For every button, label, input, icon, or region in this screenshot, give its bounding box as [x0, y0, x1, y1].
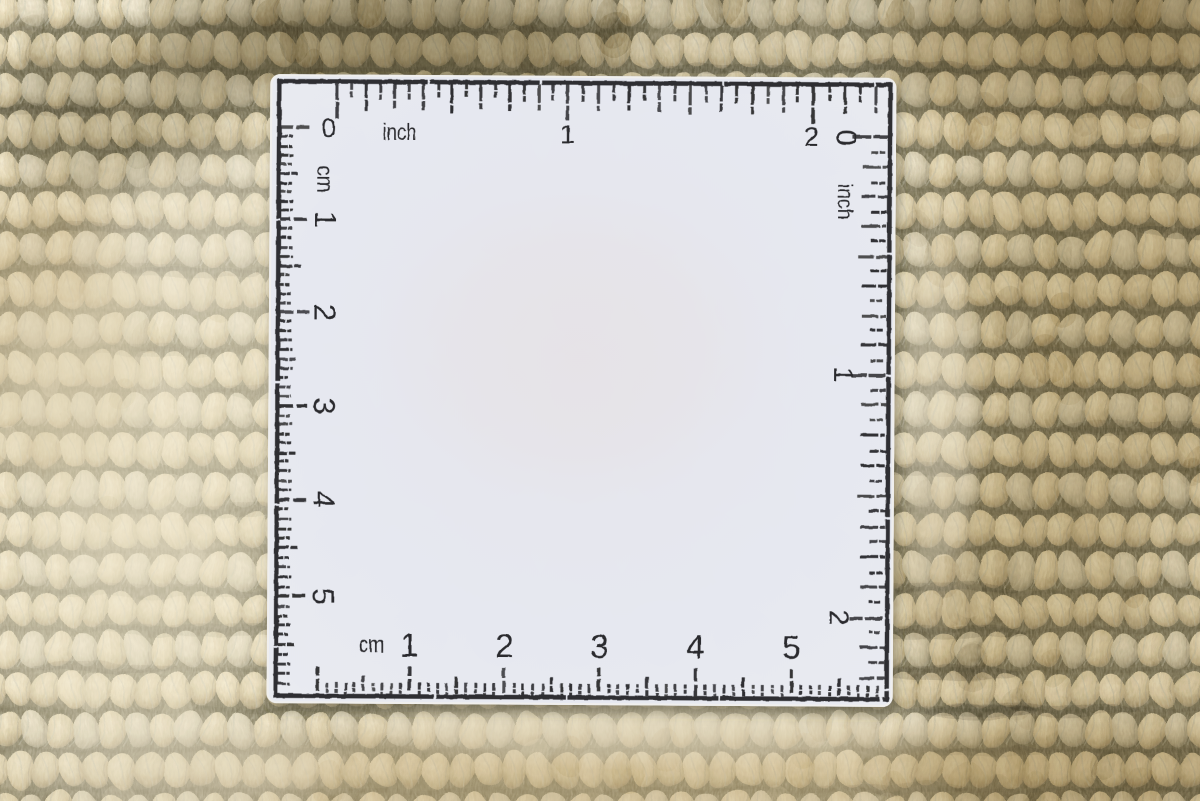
svg-text:0: 0 [830, 129, 862, 145]
svg-text:1: 1 [560, 119, 575, 149]
svg-text:inch: inch [382, 119, 416, 145]
svg-text:5: 5 [306, 588, 341, 605]
svg-text:3: 3 [590, 628, 609, 665]
svg-text:4: 4 [686, 628, 705, 665]
svg-text:cm: cm [358, 631, 384, 657]
svg-text:5: 5 [782, 629, 801, 666]
svg-text:1: 1 [828, 367, 859, 383]
svg-text:4: 4 [306, 491, 341, 508]
svg-text:2: 2 [804, 122, 819, 152]
svg-text:cm: cm [312, 165, 338, 192]
svg-text:3: 3 [307, 397, 342, 414]
svg-text:1: 1 [308, 211, 343, 228]
svg-text:2: 2 [307, 304, 342, 321]
svg-text:2: 2 [824, 610, 855, 625]
svg-text:0: 0 [321, 113, 336, 143]
svg-text:inch: inch [833, 184, 856, 220]
svg-text:2: 2 [495, 627, 514, 664]
svg-text:1: 1 [400, 626, 419, 663]
